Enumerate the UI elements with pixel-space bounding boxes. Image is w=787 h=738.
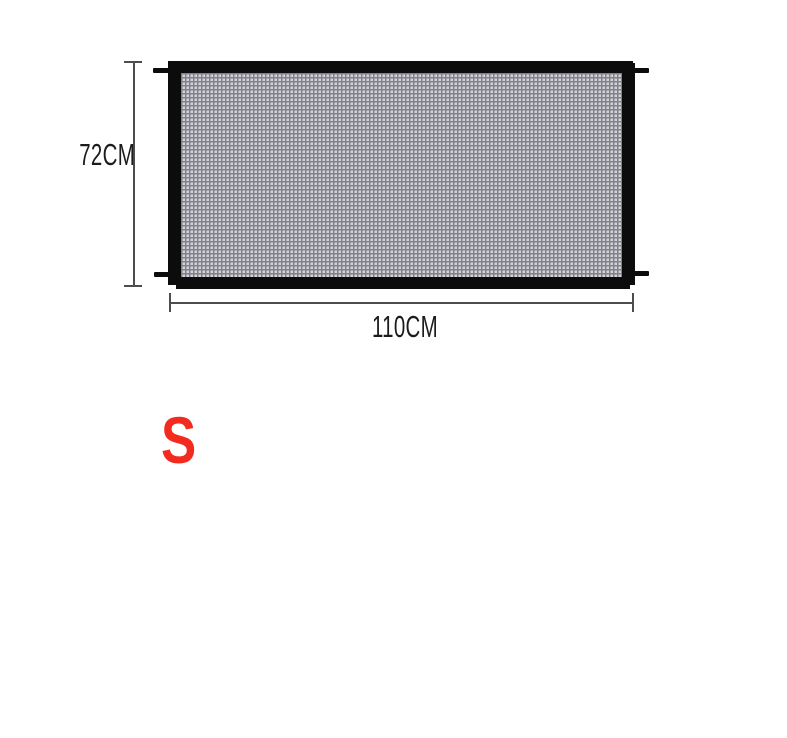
height-dimension-cap-bottom xyxy=(124,285,142,287)
width-dimension-cap-right xyxy=(632,293,634,312)
width-dimension-line xyxy=(170,302,633,304)
gate-frame-top-bar xyxy=(168,61,633,73)
height-dimension-line xyxy=(133,62,135,287)
mounting-rod-bottom-left xyxy=(154,272,171,277)
mounting-rod-top-left xyxy=(153,68,170,73)
product-dimension-diagram: 72CM 110CM S xyxy=(0,0,787,738)
size-badge: S xyxy=(161,408,196,472)
mounting-rod-bottom-right xyxy=(632,271,649,276)
gate-frame-left-bar xyxy=(168,63,181,285)
width-label: 110CM xyxy=(352,313,458,341)
height-label: 72CM xyxy=(79,141,132,169)
gate-frame-right-bar xyxy=(622,63,635,285)
gate-frame-bottom-bar xyxy=(176,277,630,289)
mounting-rod-top-right xyxy=(632,68,649,73)
mesh-fabric xyxy=(181,73,622,277)
